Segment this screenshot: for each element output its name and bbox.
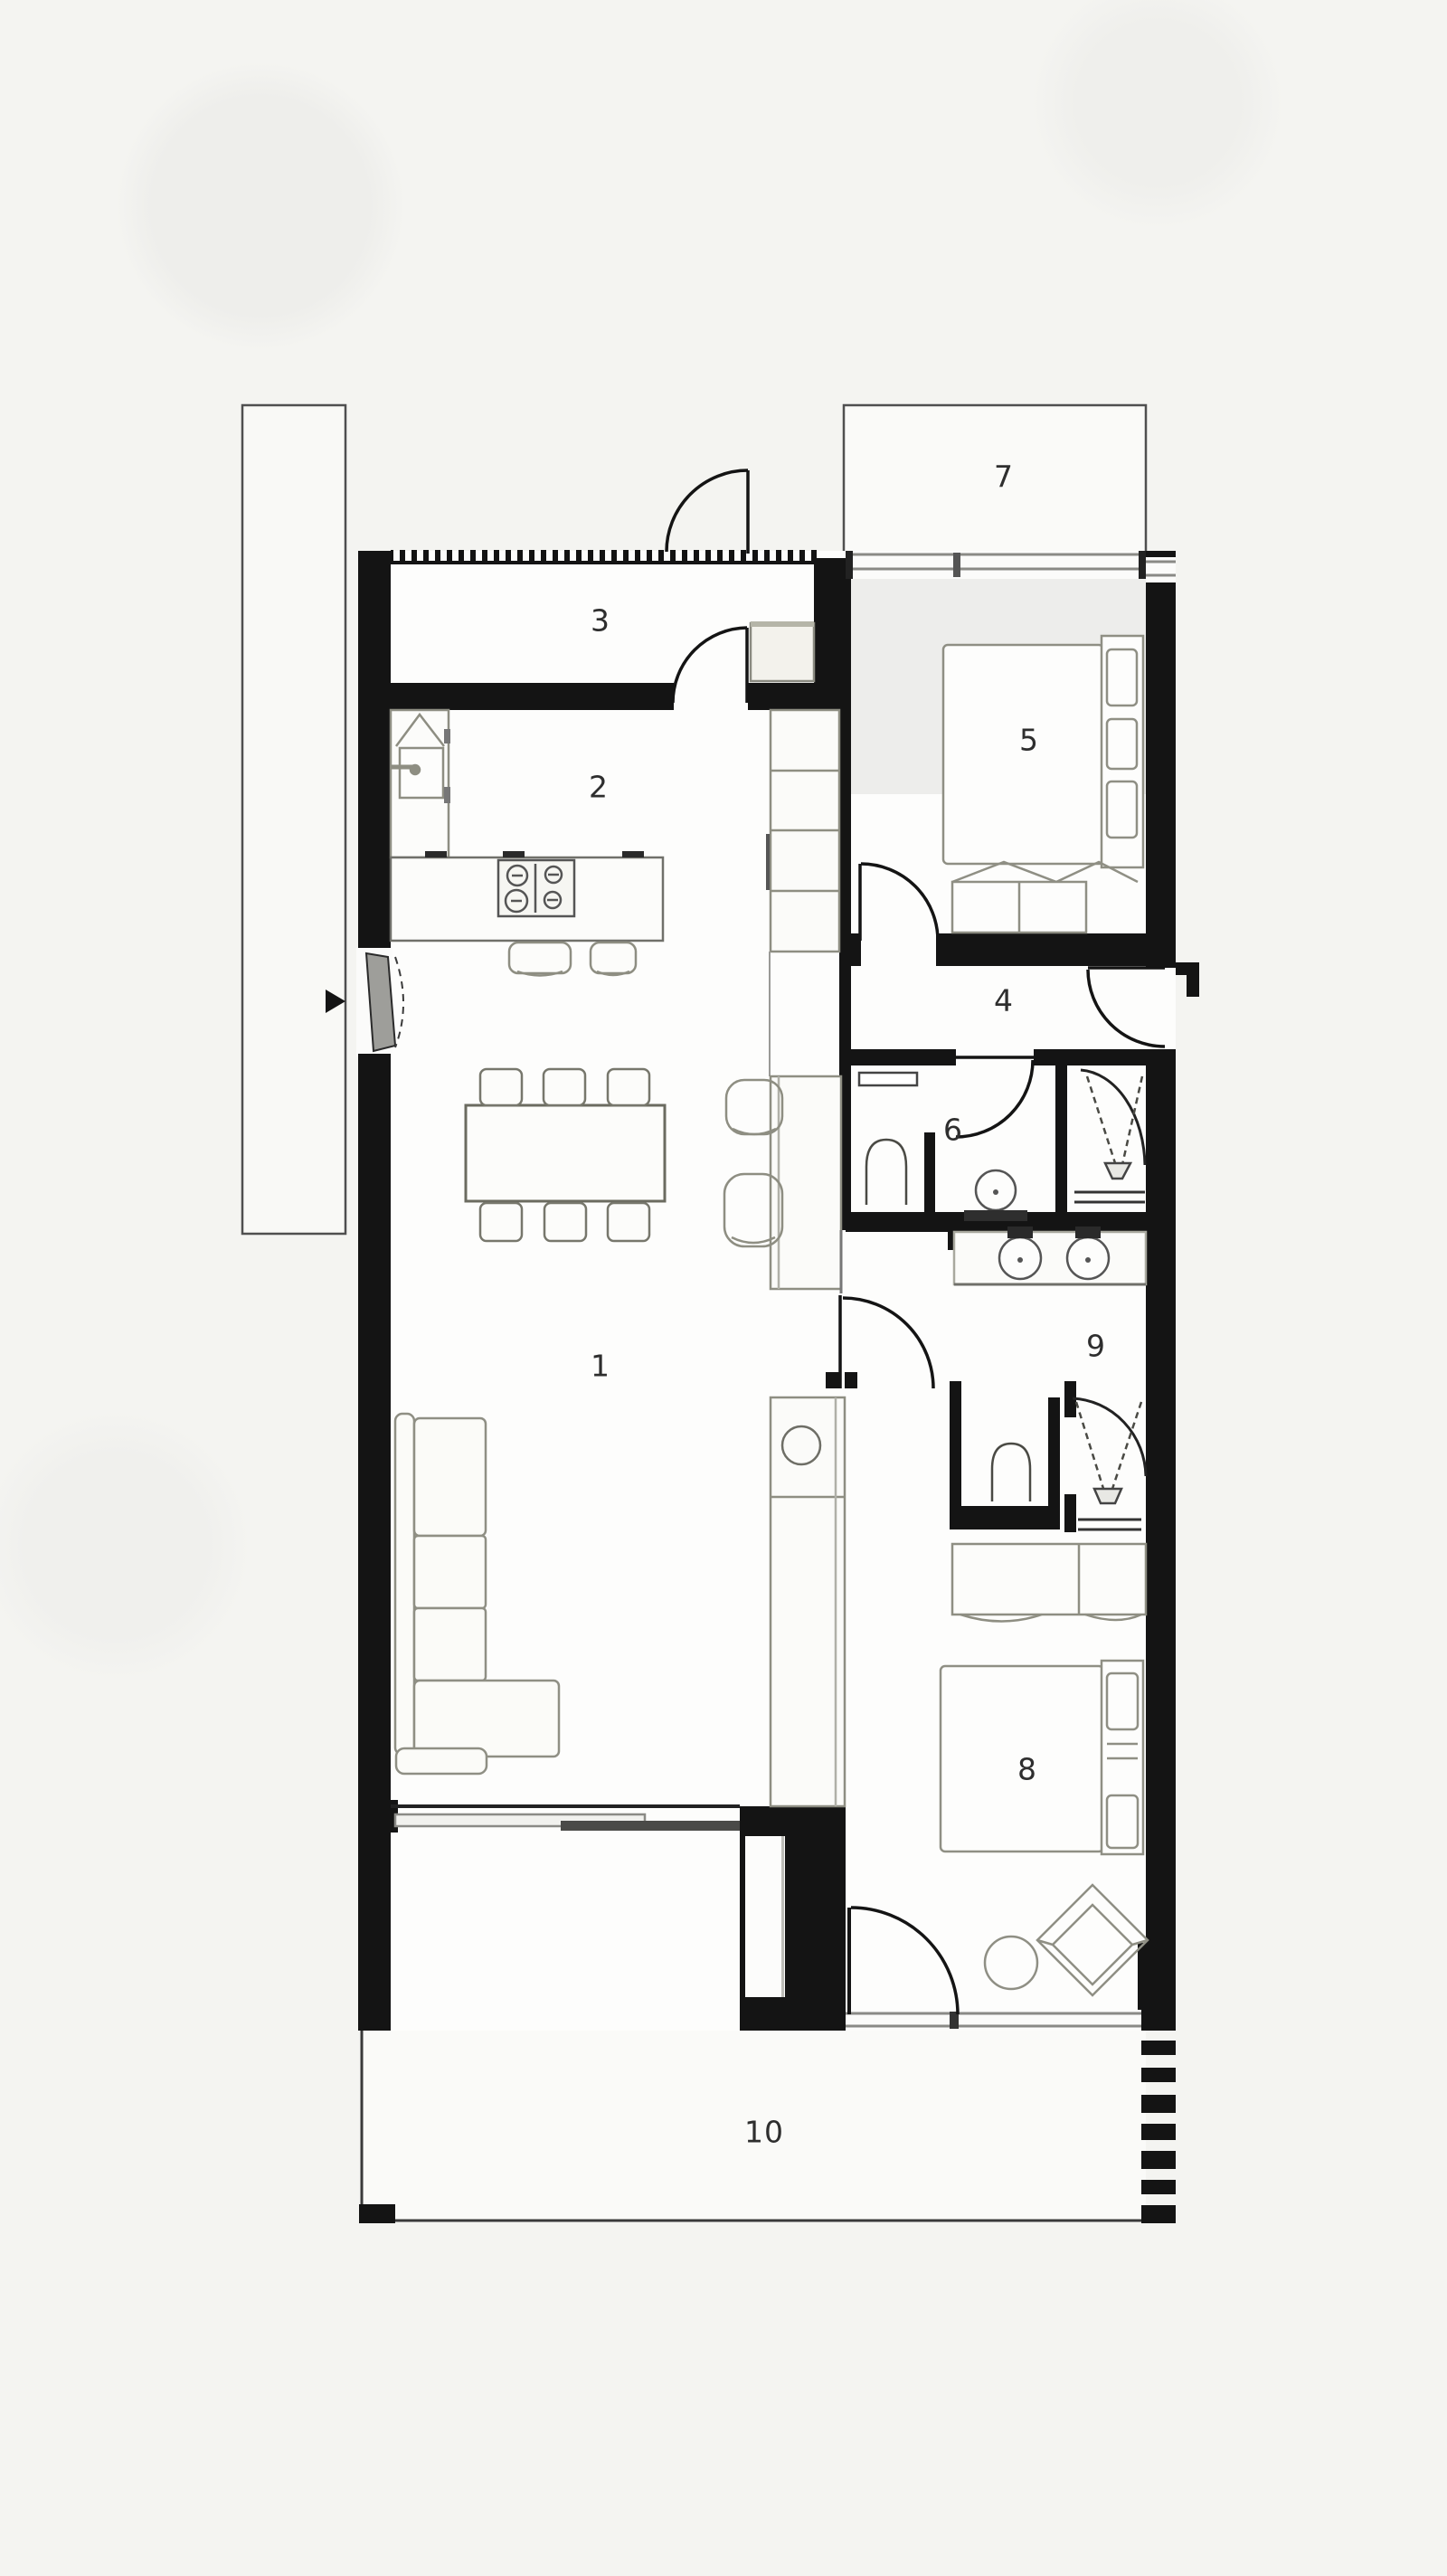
side-courtyard-outline	[242, 405, 345, 1234]
kitchen-sink-basin	[400, 748, 443, 798]
louver-screen	[391, 550, 846, 564]
double-vanity	[954, 1232, 1146, 1284]
entry-door-stop	[1187, 962, 1199, 997]
door-hinge-mark	[845, 1372, 857, 1388]
room-label-bathroom: 6	[943, 1113, 963, 1148]
door-hinge-mark	[826, 1372, 840, 1388]
terrace-dashed-boundary	[1141, 2041, 1176, 2223]
shelf	[859, 1073, 917, 1085]
pier-niche	[745, 1836, 785, 1997]
tall-cabinet	[771, 1397, 845, 1806]
room-label-bedroom-upper: 5	[1019, 723, 1039, 758]
desk	[771, 1076, 841, 1289]
room-label-hallway: 4	[994, 983, 1014, 1018]
dining-table	[466, 1105, 665, 1201]
floor-plan-page: 1 2 3 4 5 6 7 8 9 10	[0, 0, 1447, 2576]
terrace-corner-mark	[359, 2204, 395, 2223]
dining-set	[466, 1069, 665, 1241]
room-label-terrace: 10	[744, 2115, 784, 2150]
cooktop-icon	[498, 860, 574, 916]
room-label-balcony: 7	[994, 459, 1014, 495]
room-label-living-area: 1	[591, 1349, 610, 1384]
room-label-ensuite-bathroom: 9	[1086, 1329, 1106, 1364]
room-label-bedroom-lower: 8	[1017, 1752, 1037, 1787]
gate-door-top	[667, 470, 748, 554]
dresser	[952, 1544, 1146, 1622]
entry-cabinet	[751, 621, 814, 681]
room-label-entry-storage: 3	[591, 603, 610, 639]
room-label-kitchen: 2	[589, 770, 609, 805]
floor-plan-drawing	[0, 0, 1447, 2576]
